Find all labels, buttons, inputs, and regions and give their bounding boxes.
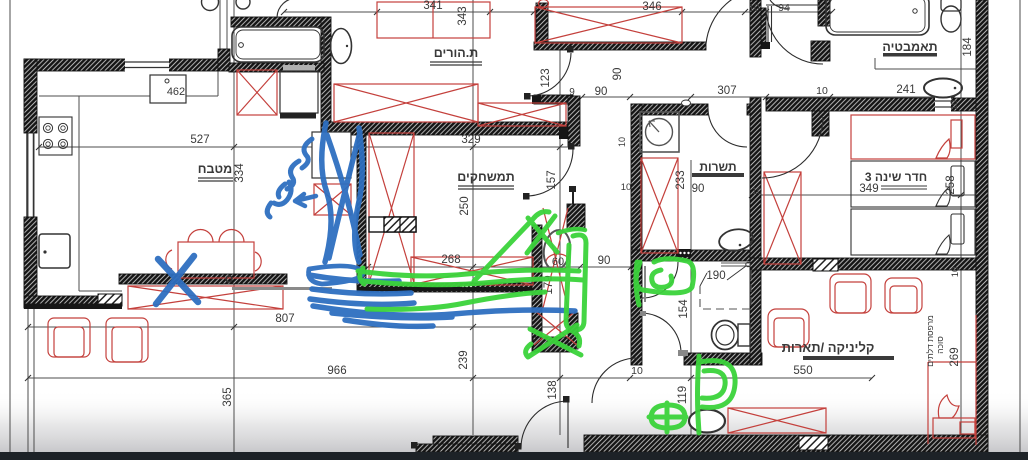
svg-text:138: 138 xyxy=(547,380,559,399)
svg-text:258: 258 xyxy=(945,175,957,194)
svg-text:10: 10 xyxy=(816,85,828,97)
svg-text:10: 10 xyxy=(621,182,632,193)
svg-text:334: 334 xyxy=(234,163,246,183)
svg-text:154: 154 xyxy=(678,299,690,319)
svg-text:9: 9 xyxy=(569,87,575,98)
svg-text:329: 329 xyxy=(461,134,480,146)
svg-text:241: 241 xyxy=(896,84,915,96)
svg-text:462: 462 xyxy=(167,86,185,98)
svg-text:527: 527 xyxy=(190,134,209,146)
svg-text:550: 550 xyxy=(793,365,812,377)
svg-text:ת.הורים: ת.הורים xyxy=(434,46,478,60)
svg-text:123: 123 xyxy=(540,68,552,87)
svg-text:קליניקה /תארות: קליניקה /תארות xyxy=(782,340,875,355)
svg-text:346: 346 xyxy=(642,1,661,13)
svg-text:94: 94 xyxy=(778,2,790,14)
svg-text:239: 239 xyxy=(458,350,470,369)
svg-text:10: 10 xyxy=(949,100,959,110)
svg-text:966: 966 xyxy=(327,365,346,377)
svg-text:184: 184 xyxy=(962,37,974,57)
svg-text:סוכה: סוכה xyxy=(935,336,945,354)
svg-text:10: 10 xyxy=(748,3,760,14)
svg-text:343: 343 xyxy=(457,6,469,25)
svg-text:0: 0 xyxy=(537,256,542,267)
svg-text:349: 349 xyxy=(859,183,878,195)
svg-text:10: 10 xyxy=(631,365,643,377)
svg-text:233: 233 xyxy=(675,170,687,189)
svg-text:190: 190 xyxy=(706,270,725,282)
svg-text:10: 10 xyxy=(950,267,961,278)
svg-text:מרפסת דלתים: מרפסת דלתים xyxy=(925,315,935,367)
svg-text:307: 307 xyxy=(717,85,736,97)
svg-text:341: 341 xyxy=(423,0,442,12)
svg-text:תשרות: תשרות xyxy=(699,160,736,174)
svg-text:365: 365 xyxy=(222,387,234,406)
svg-text:268: 268 xyxy=(441,254,460,266)
svg-text:807: 807 xyxy=(275,313,294,325)
svg-text:119: 119 xyxy=(677,386,689,404)
svg-text:מטבח: מטבח xyxy=(198,162,232,176)
svg-text:269: 269 xyxy=(949,347,961,366)
svg-text:90: 90 xyxy=(595,86,608,98)
svg-text:90: 90 xyxy=(612,68,624,81)
svg-text:10: 10 xyxy=(617,137,627,147)
svg-text:תמשחקים: תמשחקים xyxy=(457,170,514,184)
svg-text:90: 90 xyxy=(692,183,705,195)
svg-text:60: 60 xyxy=(552,256,564,268)
svg-text:90: 90 xyxy=(598,255,611,267)
svg-text:חדר שינה 3: חדר שינה 3 xyxy=(865,170,927,184)
svg-text:10: 10 xyxy=(752,186,762,196)
svg-text:157: 157 xyxy=(546,170,558,189)
svg-text:250: 250 xyxy=(459,196,471,215)
svg-text:תאמבטיה: תאמבטיה xyxy=(882,40,937,54)
